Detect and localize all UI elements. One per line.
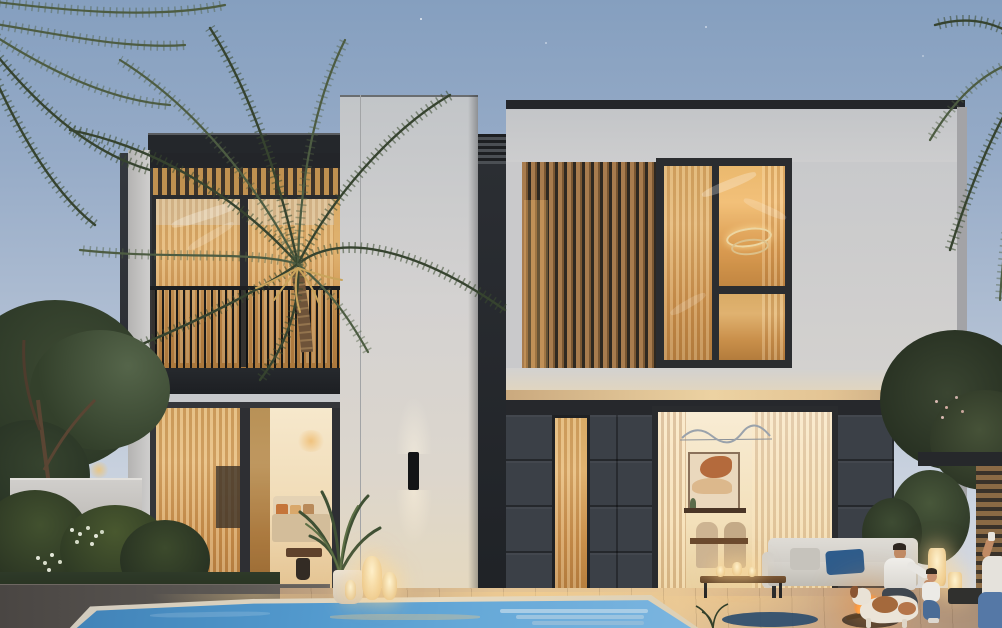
- frangipani-flowers: [935, 400, 938, 403]
- floor-lantern: [362, 556, 382, 600]
- palm-left: [70, 28, 505, 380]
- candle: [748, 567, 756, 577]
- child-jeans: [923, 600, 940, 620]
- person-shirt: [982, 556, 1002, 596]
- table-leg: [779, 583, 782, 598]
- garden-light-glow: [296, 430, 326, 452]
- pool-step: [532, 621, 644, 625]
- child-hair: [926, 568, 937, 574]
- palm-corner: [0, 0, 225, 225]
- villa-render-scene: [0, 0, 1002, 628]
- deck-sprigs: [688, 602, 738, 628]
- dog-ear: [850, 586, 858, 598]
- dog-leg: [902, 619, 907, 628]
- dog-leg: [866, 618, 871, 628]
- pool-step: [516, 615, 644, 619]
- grey-pillow: [790, 548, 820, 570]
- candle: [716, 566, 725, 577]
- person-jeans: [978, 592, 1002, 628]
- water-warm-reflection: [330, 614, 480, 620]
- dog-patch: [872, 596, 898, 613]
- child-shirt: [922, 582, 940, 602]
- held-cup: [988, 532, 995, 541]
- navy-pillow: [825, 549, 865, 576]
- candle: [732, 562, 742, 576]
- table-leg: [704, 583, 707, 598]
- pergola-beam: [918, 452, 1002, 466]
- white-flowers: [70, 528, 74, 532]
- table-top: [700, 576, 786, 583]
- child-shoe: [928, 618, 939, 623]
- floor-lantern: [382, 572, 397, 600]
- garden-light-glow: [88, 462, 110, 478]
- floor-lantern: [345, 580, 356, 600]
- palm-right: [930, 20, 1002, 300]
- man-hair: [893, 543, 906, 550]
- pool-step: [500, 609, 648, 613]
- sofa-leg: [772, 586, 776, 598]
- dog-patch: [898, 602, 916, 615]
- white-flowers: [36, 556, 40, 560]
